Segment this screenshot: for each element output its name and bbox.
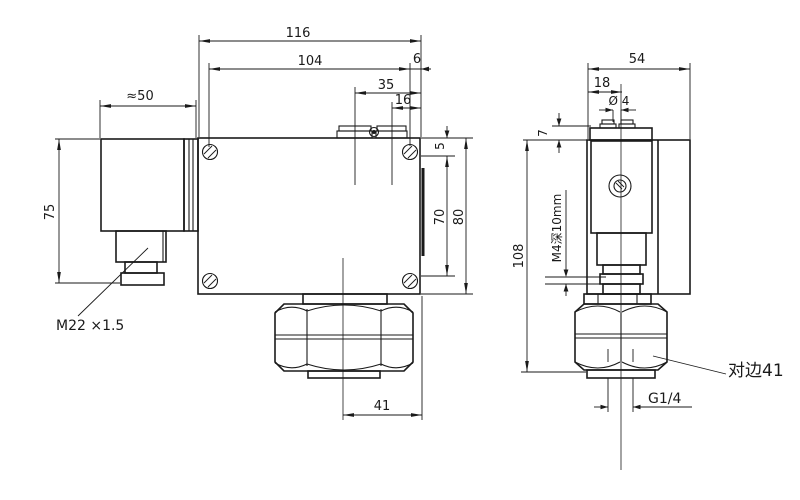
dim-terminal-inner: 16 (395, 93, 412, 108)
front-port-nut (275, 258, 413, 420)
case-seam (422, 168, 425, 256)
dim-total-width: 116 (286, 26, 311, 41)
dim-total-depth: 54 (629, 52, 646, 67)
front-terminal-block (337, 126, 407, 138)
dim-cable-length: ≈50 (126, 89, 153, 104)
mount-thread-label: M4深10mm (550, 194, 564, 263)
pressure-switch-drawing: 116 104 6 35 16 ≈50 75 5 70 (0, 0, 800, 500)
dim-screw-diameter: Ø 4 (609, 94, 630, 108)
dim-side-total-height: 108 (512, 244, 527, 269)
front-connector (101, 139, 198, 285)
dim-screw-offset: 18 (594, 76, 611, 91)
dim-vert-span: 70 (433, 209, 448, 226)
engineering-drawing-sheet: 116 104 6 35 16 ≈50 75 5 70 (0, 0, 800, 500)
across-flats-label: 对边41 (728, 361, 784, 381)
dim-mount-span: 104 (298, 54, 323, 69)
side-sensor-body (584, 233, 651, 304)
side-connector-face (591, 141, 652, 233)
side-dimensions: 54 18 Ø 4 7 108 M4深10mm (512, 52, 784, 412)
dim-connector-height: 75 (43, 204, 58, 221)
dim-cover-height: 7 (536, 129, 550, 137)
dim-terminal-span: 35 (378, 78, 395, 93)
port-thread-label: G1/4 (648, 391, 681, 407)
front-view: 116 104 6 35 16 ≈50 75 5 70 (43, 26, 473, 420)
front-case (198, 138, 425, 294)
mounting-screw-icon (203, 145, 418, 289)
side-view: 54 18 Ø 4 7 108 M4深10mm (512, 52, 784, 470)
conduit-thread-label: M22 ×1.5 (56, 318, 124, 334)
connector-screw-icon (609, 175, 631, 197)
dim-port-offset: 41 (374, 399, 391, 414)
dim-total-height: 80 (452, 209, 467, 226)
front-dimensions: 116 104 6 35 16 ≈50 75 5 70 (43, 26, 473, 420)
dim-edge-offset: 6 (413, 52, 421, 67)
dim-top-gap: 5 (433, 142, 447, 150)
